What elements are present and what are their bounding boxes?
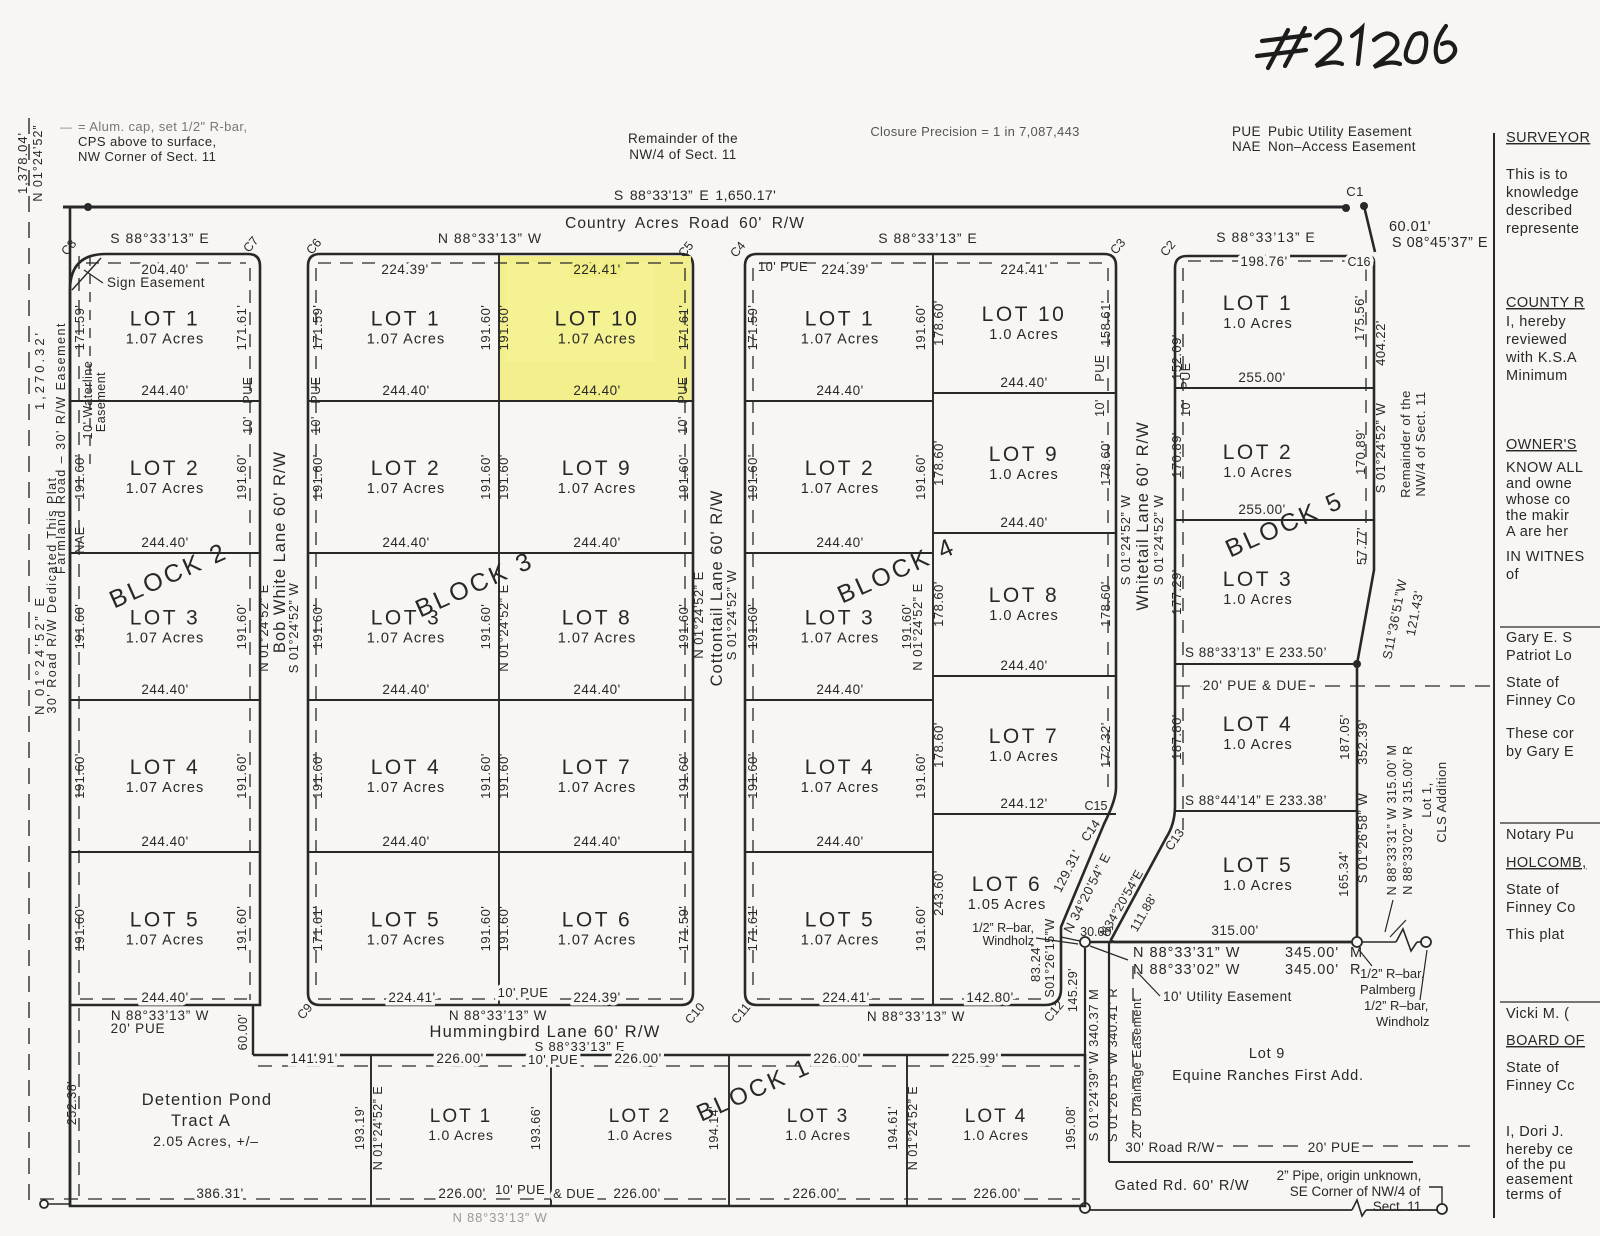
svg-text:1.07 Acres: 1.07 Acres xyxy=(367,481,446,497)
svg-text:10' PUE: 10' PUE xyxy=(495,1182,545,1197)
svg-text:Minimum: Minimum xyxy=(1506,368,1568,384)
svg-text:Finney Co: Finney Co xyxy=(1506,693,1576,709)
svg-text:whose co: whose co xyxy=(1505,492,1570,508)
svg-text:244.40': 244.40' xyxy=(573,834,620,849)
svg-text:Equine Ranches First Add.: Equine Ranches First Add. xyxy=(1172,1068,1364,1084)
svg-text:LOT 4: LOT 4 xyxy=(965,1106,1027,1127)
svg-text:S 88°33’13” E: S 88°33’13” E xyxy=(878,230,978,246)
svg-text:BOARD OF: BOARD OF xyxy=(1506,1033,1585,1049)
svg-text:NW/4 of Sect. 11: NW/4 of Sect. 11 xyxy=(629,147,736,162)
svg-text:S 01°24’39” W 340.37 M: S 01°24’39” W 340.37 M xyxy=(1086,989,1101,1142)
svg-text:S 01°24’52” W: S 01°24’52” W xyxy=(286,583,301,674)
svg-text:244.40': 244.40' xyxy=(1000,658,1047,673)
svg-text:171.59': 171.59' xyxy=(310,305,325,351)
svg-text:226.00': 226.00' xyxy=(792,1186,839,1201)
svg-text:171.61': 171.61' xyxy=(234,305,249,351)
svg-text:244.40': 244.40' xyxy=(141,383,188,398)
svg-text:191.60': 191.60' xyxy=(478,305,493,351)
svg-text:SURVEYOR: SURVEYOR xyxy=(1506,130,1590,146)
svg-text:S 01°26’15” W 340.41’ R: S 01°26’15” W 340.41’ R xyxy=(1105,988,1120,1142)
svg-text:N 88°33’02” W: N 88°33’02” W xyxy=(1133,962,1240,978)
svg-text:244.40': 244.40' xyxy=(573,383,620,398)
svg-text:LOT 4: LOT 4 xyxy=(1223,713,1293,736)
svg-text:I, Dori J.: I, Dori J. xyxy=(1506,1124,1564,1140)
svg-text:224.39': 224.39' xyxy=(381,262,428,277)
svg-text:178.60': 178.60' xyxy=(931,300,946,346)
svg-text:LOT 5: LOT 5 xyxy=(130,909,200,932)
svg-text:PUE: PUE xyxy=(241,376,255,403)
svg-text:404.22': 404.22' xyxy=(1373,320,1388,366)
svg-text:N 88°33’13” W: N 88°33’13” W xyxy=(867,1009,965,1024)
svg-text:Finney Co: Finney Co xyxy=(1506,900,1576,916)
svg-text:1/2” R–bar,: 1/2” R–bar, xyxy=(1360,966,1424,981)
svg-text:easement: easement xyxy=(1506,1172,1573,1188)
svg-text:191.60': 191.60' xyxy=(310,753,325,799)
svg-text:LOT 3: LOT 3 xyxy=(1223,568,1293,591)
svg-text:N 88°33’13” W: N 88°33’13” W xyxy=(452,1210,547,1225)
svg-text:191.60': 191.60' xyxy=(234,753,249,799)
svg-text:LOT 2: LOT 2 xyxy=(609,1106,671,1127)
svg-text:10' PUE: 10' PUE xyxy=(528,1052,578,1067)
svg-text:171.61': 171.61' xyxy=(745,906,760,952)
svg-text:244.40': 244.40' xyxy=(1000,515,1047,530)
svg-text:1.07 Acres: 1.07 Acres xyxy=(558,332,637,348)
svg-text:191.60': 191.60' xyxy=(310,454,325,500)
svg-text:LOT 3: LOT 3 xyxy=(805,607,875,630)
svg-text:& DUE: & DUE xyxy=(553,1186,595,1201)
svg-text:State of: State of xyxy=(1506,882,1560,898)
svg-text:191.60': 191.60' xyxy=(745,753,760,799)
svg-text:LOT 4: LOT 4 xyxy=(130,756,200,779)
svg-text:N 01°24’52” E: N 01°24’52” E xyxy=(256,584,271,672)
svg-text:1.0 Acres: 1.0 Acres xyxy=(1223,465,1292,481)
svg-text:Lot 1,: Lot 1, xyxy=(1419,782,1434,818)
svg-text:1.07 Acres: 1.07 Acres xyxy=(126,481,205,497)
svg-text:1.0 Acres: 1.0 Acres xyxy=(1223,316,1292,332)
svg-text:PUE: PUE xyxy=(309,376,323,403)
svg-text:1.07 Acres: 1.07 Acres xyxy=(801,780,880,796)
svg-text:LOT 2: LOT 2 xyxy=(805,457,875,480)
svg-text:These cor: These cor xyxy=(1506,726,1574,742)
svg-text:191.60': 191.60' xyxy=(913,906,928,952)
svg-text:LOT 4: LOT 4 xyxy=(805,756,875,779)
svg-text:1.0 Acres: 1.0 Acres xyxy=(1223,878,1292,894)
svg-text:LOT 6: LOT 6 xyxy=(972,873,1042,896)
svg-text:226.00': 226.00' xyxy=(813,1051,860,1066)
svg-text:244.40': 244.40' xyxy=(573,535,620,550)
svg-text:244.40': 244.40' xyxy=(1000,375,1047,390)
svg-text:195.08': 195.08' xyxy=(1064,1106,1078,1150)
svg-text:represente: represente xyxy=(1506,221,1579,237)
svg-text:224.41': 224.41' xyxy=(388,990,435,1005)
svg-text:191.60': 191.60' xyxy=(478,454,493,500)
svg-text:226.00': 226.00' xyxy=(436,1051,483,1066)
svg-text:Sign Easement: Sign Easement xyxy=(107,275,205,290)
svg-text:S 88°33’13” E: S 88°33’13” E xyxy=(1216,229,1316,245)
svg-text:LOT 7: LOT 7 xyxy=(989,725,1059,748)
svg-text:158.61': 158.61' xyxy=(1098,300,1113,346)
svg-text:20' PUE: 20' PUE xyxy=(111,1021,166,1036)
svg-text:1.07 Acres: 1.07 Acres xyxy=(558,631,637,647)
svg-text:352.39': 352.39' xyxy=(1355,719,1370,765)
svg-text:LOT 4: LOT 4 xyxy=(371,756,441,779)
svg-text:Detention Pond: Detention Pond xyxy=(142,1091,273,1109)
svg-text:171.61': 171.61' xyxy=(676,305,691,351)
svg-text:Notary Pu: Notary Pu xyxy=(1506,827,1574,843)
svg-text:1.07 Acres: 1.07 Acres xyxy=(367,933,446,949)
svg-text:LOT 2: LOT 2 xyxy=(1223,441,1293,464)
svg-text:N 01°24’52” E: N 01°24’52” E xyxy=(906,1086,920,1170)
svg-text:10' Waterline: 10' Waterline xyxy=(81,361,95,440)
svg-text:NAE: NAE xyxy=(73,526,87,553)
svg-text:N 01°24’52” E: N 01°24’52” E xyxy=(691,571,706,659)
svg-text:PUE: PUE xyxy=(1232,124,1261,139)
svg-text:LOT 5: LOT 5 xyxy=(371,909,441,932)
svg-text:of the pu: of the pu xyxy=(1506,1157,1566,1173)
svg-text:178.60': 178.60' xyxy=(931,722,946,768)
svg-text:This is to: This is to xyxy=(1506,167,1568,183)
svg-text:193.19': 193.19' xyxy=(353,1106,367,1150)
svg-text:LOT 3: LOT 3 xyxy=(787,1106,849,1127)
svg-text:1.07 Acres: 1.07 Acres xyxy=(558,481,637,497)
svg-text:S 01°24’52” W: S 01°24’52” W xyxy=(1151,495,1166,586)
svg-text:191.60': 191.60' xyxy=(913,454,928,500)
svg-text:LOT 7: LOT 7 xyxy=(562,756,632,779)
svg-text:1.0 Acres: 1.0 Acres xyxy=(607,1127,673,1143)
svg-text:S 88°44’14” E 233.38’: S 88°44’14” E 233.38’ xyxy=(1185,793,1327,808)
svg-text:LOT 5: LOT 5 xyxy=(805,909,875,932)
svg-text:1.0 Acres: 1.0 Acres xyxy=(1223,592,1292,608)
svg-text:N 88°33’02” W 315.00’ R: N 88°33’02” W 315.00’ R xyxy=(1401,745,1415,894)
svg-text:LOT 8: LOT 8 xyxy=(989,584,1059,607)
svg-text:Patriot Lo: Patriot Lo xyxy=(1506,648,1572,664)
svg-text:terms of: terms of xyxy=(1506,1187,1562,1203)
svg-text:Tract A: Tract A xyxy=(171,1112,231,1130)
svg-text:171.61': 171.61' xyxy=(310,906,325,952)
svg-text:224.39': 224.39' xyxy=(821,262,868,277)
svg-text:Remainder of the: Remainder of the xyxy=(1398,390,1413,498)
svg-text:OWNER'S: OWNER'S xyxy=(1506,437,1577,453)
svg-text:LOT 1: LOT 1 xyxy=(805,308,875,331)
svg-text:178.60': 178.60' xyxy=(931,440,946,486)
svg-text:187.05': 187.05' xyxy=(1337,714,1352,760)
svg-text:C1: C1 xyxy=(1346,184,1364,199)
svg-text:1.07 Acres: 1.07 Acres xyxy=(558,780,637,796)
svg-text:244.40': 244.40' xyxy=(141,535,188,550)
svg-text:1.07 Acres: 1.07 Acres xyxy=(126,332,205,348)
svg-text:SE Corner of NW/4 of: SE Corner of NW/4 of xyxy=(1290,1184,1421,1199)
svg-text:171.59': 171.59' xyxy=(745,305,760,351)
svg-text:S 08°45’37” E: S 08°45’37” E xyxy=(1392,235,1488,251)
svg-text:LOT 2: LOT 2 xyxy=(371,457,441,480)
svg-text:Easement: Easement xyxy=(94,372,108,432)
svg-text:1.0 Acres: 1.0 Acres xyxy=(785,1127,851,1143)
svg-text:A are her: A are her xyxy=(1506,524,1568,540)
svg-text:LOT 9: LOT 9 xyxy=(562,457,632,480)
svg-text:C16: C16 xyxy=(1348,255,1371,269)
svg-text:191.60': 191.60' xyxy=(913,305,928,351)
svg-text:Windholz: Windholz xyxy=(983,934,1034,948)
svg-text:191.60': 191.60' xyxy=(496,753,511,799)
svg-text:175.56': 175.56' xyxy=(1352,295,1367,341)
svg-text:244.40': 244.40' xyxy=(382,682,429,697)
svg-text:193.66': 193.66' xyxy=(529,1106,543,1150)
svg-text:1.07 Acres: 1.07 Acres xyxy=(801,332,880,348)
svg-text:LOT 10: LOT 10 xyxy=(555,308,640,331)
svg-text:1.07 Acres: 1.07 Acres xyxy=(367,780,446,796)
svg-text:1.0 Acres: 1.0 Acres xyxy=(989,467,1058,483)
svg-text:10': 10' xyxy=(1093,399,1107,417)
svg-text:243.60': 243.60' xyxy=(931,870,946,916)
svg-text:S 01°24’52” W: S 01°24’52” W xyxy=(724,570,739,661)
svg-text:LOT 1: LOT 1 xyxy=(430,1106,492,1127)
svg-text:244.40': 244.40' xyxy=(816,834,863,849)
svg-text:191.60': 191.60' xyxy=(496,454,511,500)
svg-text:191.60': 191.60' xyxy=(234,604,249,650)
svg-text:Gated Rd. 60' R/W: Gated Rd. 60' R/W xyxy=(1115,1178,1250,1194)
svg-text:2.05 Acres, +/–: 2.05 Acres, +/– xyxy=(153,1133,259,1149)
svg-text:191.60': 191.60' xyxy=(478,906,493,952)
svg-text:of: of xyxy=(1506,567,1519,583)
svg-text:224.39': 224.39' xyxy=(573,990,620,1005)
svg-text:described: described xyxy=(1506,203,1572,219)
svg-text:225.99': 225.99' xyxy=(951,1051,998,1066)
svg-text:Vicki M. (: Vicki M. ( xyxy=(1506,1006,1569,1022)
svg-text:Pubic Utility Easement: Pubic Utility Easement xyxy=(1268,124,1412,139)
svg-text:191.60': 191.60' xyxy=(478,604,493,650)
svg-text:191.60': 191.60' xyxy=(72,753,87,799)
svg-text:1.0 Acres: 1.0 Acres xyxy=(989,749,1058,765)
svg-text:Lot 9: Lot 9 xyxy=(1249,1046,1285,1062)
svg-text:315.00': 315.00' xyxy=(1211,923,1258,938)
svg-text:20' PUE & DUE: 20' PUE & DUE xyxy=(1203,678,1308,693)
svg-text:Sect. 11: Sect. 11 xyxy=(1373,1199,1422,1214)
svg-text:by Gary E: by Gary E xyxy=(1506,744,1574,760)
svg-text:142.80': 142.80' xyxy=(966,990,1013,1005)
svg-text:S 01°24’52” W: S 01°24’52” W xyxy=(1118,495,1133,586)
svg-text:345.00': 345.00' xyxy=(1285,962,1339,978)
svg-text:191.60': 191.60' xyxy=(676,753,691,799)
svg-text:2” Pipe, origin unknown,: 2” Pipe, origin unknown, xyxy=(1277,1168,1422,1183)
svg-text:hereby ce: hereby ce xyxy=(1506,1142,1573,1158)
svg-text:170.89': 170.89' xyxy=(1353,429,1368,475)
svg-text:N 88°33’13” W: N 88°33’13” W xyxy=(438,230,542,246)
svg-text:Country Acres Road 60' R/W: Country Acres Road 60' R/W xyxy=(565,215,805,232)
svg-text:1.07 Acres: 1.07 Acres xyxy=(367,631,446,647)
svg-text:1.05 Acres: 1.05 Acres xyxy=(968,897,1047,913)
svg-text:N 01°24’52” E: N 01°24’52” E xyxy=(371,1086,385,1170)
svg-text:1.07 Acres: 1.07 Acres xyxy=(367,332,446,348)
svg-text:PUE: PUE xyxy=(1179,362,1193,389)
svg-text:knowledge: knowledge xyxy=(1506,185,1579,201)
svg-text:1.0 Acres: 1.0 Acres xyxy=(989,608,1058,624)
svg-text:198.76': 198.76' xyxy=(1240,254,1287,269)
svg-text:141.91': 141.91' xyxy=(290,1051,337,1066)
svg-text:191.60': 191.60' xyxy=(496,305,511,351)
svg-text:IN WITNES: IN WITNES xyxy=(1506,549,1585,565)
svg-text:Whitetail Lane 60' R/W: Whitetail Lane 60' R/W xyxy=(1134,421,1152,610)
svg-text:83.24': 83.24' xyxy=(1028,944,1043,982)
svg-text:LOT 5: LOT 5 xyxy=(1223,854,1293,877)
svg-text:191.60': 191.60' xyxy=(676,454,691,500)
svg-text:1.0 Acres: 1.0 Acres xyxy=(1223,737,1292,753)
svg-text:171.59': 171.59' xyxy=(72,305,87,351)
svg-text:178.60': 178.60' xyxy=(1098,440,1113,486)
svg-text:170.89': 170.89' xyxy=(1169,432,1184,478)
svg-text:20' Drainage Easement: 20' Drainage Easement xyxy=(1130,998,1144,1139)
svg-text:M: M xyxy=(1350,945,1362,961)
svg-text:LOT 1: LOT 1 xyxy=(130,308,200,331)
svg-text:Finney Cc: Finney Cc xyxy=(1506,1078,1575,1094)
svg-text:PUE: PUE xyxy=(676,376,690,403)
svg-text:244.40': 244.40' xyxy=(141,990,188,1005)
svg-text:252.38': 252.38' xyxy=(65,1081,79,1125)
svg-text:10' Utility Easement: 10' Utility Easement xyxy=(1163,989,1292,1004)
svg-text:191.60': 191.60' xyxy=(676,604,691,650)
svg-text:10': 10' xyxy=(676,416,690,434)
svg-text:N 01°24’52” E: N 01°24’52” E xyxy=(496,584,511,672)
svg-text:1.0 Acres: 1.0 Acres xyxy=(963,1127,1029,1143)
svg-text:226.00': 226.00' xyxy=(613,1186,660,1201)
svg-text:226.00': 226.00' xyxy=(614,1051,661,1066)
svg-text:Closure Precision = 1 in 7,087: Closure Precision = 1 in 7,087,443 xyxy=(870,124,1079,139)
svg-text:1,270.32': 1,270.32' xyxy=(32,330,47,410)
svg-text:187.80': 187.80' xyxy=(1169,714,1184,760)
svg-text:1.07 Acres: 1.07 Acres xyxy=(126,933,205,949)
svg-text:N 01°24’52”: N 01°24’52” xyxy=(31,124,45,201)
svg-text:345.00': 345.00' xyxy=(1285,945,1339,961)
svg-text:State of: State of xyxy=(1506,1060,1560,1076)
svg-text:N 88°33’31” W: N 88°33’31” W xyxy=(1133,945,1240,961)
svg-text:244.12': 244.12' xyxy=(1000,796,1047,811)
svg-text:S 88°33’13” E: S 88°33’13” E xyxy=(110,230,210,246)
svg-text:191.60': 191.60' xyxy=(310,604,325,650)
svg-text:10': 10' xyxy=(1179,399,1193,417)
svg-text:LOT 9: LOT 9 xyxy=(989,443,1059,466)
svg-text:with K.S.A: with K.S.A xyxy=(1505,350,1577,366)
svg-text:C15: C15 xyxy=(1085,799,1108,813)
svg-text:255.00': 255.00' xyxy=(1238,370,1285,385)
svg-text:1.07 Acres: 1.07 Acres xyxy=(126,780,205,796)
svg-text:LOT 8: LOT 8 xyxy=(562,607,632,630)
svg-text:and owne: and owne xyxy=(1506,476,1572,492)
svg-text:R: R xyxy=(1350,962,1360,978)
svg-text:191.60': 191.60' xyxy=(913,753,928,799)
svg-text:1.07 Acres: 1.07 Acres xyxy=(801,481,880,497)
svg-text:191.60': 191.60' xyxy=(72,454,87,500)
svg-text:191.60': 191.60' xyxy=(234,454,249,500)
svg-text:NW/4 of Sect. 11: NW/4 of Sect. 11 xyxy=(1413,391,1428,496)
svg-text:191.60': 191.60' xyxy=(234,906,249,952)
svg-text:20' PUE: 20' PUE xyxy=(1308,1140,1361,1155)
svg-text:NAE: NAE xyxy=(1232,139,1261,154)
svg-text:178.60': 178.60' xyxy=(1098,581,1113,627)
svg-text:HOLCOMB,: HOLCOMB, xyxy=(1506,855,1587,871)
svg-text:1.0 Acres: 1.0 Acres xyxy=(989,327,1058,343)
svg-text:191.60': 191.60' xyxy=(745,454,760,500)
svg-text:1,378.04': 1,378.04' xyxy=(15,132,30,194)
svg-text:191.60': 191.60' xyxy=(72,604,87,650)
svg-text:57.77': 57.77' xyxy=(1354,527,1369,565)
svg-text:244.40': 244.40' xyxy=(382,834,429,849)
svg-text:Farmland Road – 30' R/W Easeme: Farmland Road – 30' R/W Easement xyxy=(54,322,68,574)
svg-text:60.00': 60.00' xyxy=(236,1014,250,1051)
svg-text:177.29': 177.29' xyxy=(1169,569,1184,615)
svg-text:191.60': 191.60' xyxy=(72,906,87,952)
svg-text:1.07 Acres: 1.07 Acres xyxy=(558,933,637,949)
svg-text:1/2” R–bar,: 1/2” R–bar, xyxy=(972,921,1034,935)
svg-text:244.40': 244.40' xyxy=(573,682,620,697)
svg-text:1.07 Acres: 1.07 Acres xyxy=(126,631,205,647)
svg-text:—: — xyxy=(60,120,72,134)
svg-text:10': 10' xyxy=(309,416,323,434)
svg-text:165.34': 165.34' xyxy=(1336,851,1351,897)
svg-text:LOT 1: LOT 1 xyxy=(371,308,441,331)
svg-text:145.29': 145.29' xyxy=(1066,968,1080,1012)
svg-text:LOT 3: LOT 3 xyxy=(130,607,200,630)
svg-text:Palmberg: Palmberg xyxy=(1360,982,1416,997)
svg-text:NW Corner of Sect. 11: NW Corner of Sect. 11 xyxy=(78,149,216,164)
svg-text:This plat: This plat xyxy=(1506,927,1564,943)
svg-text:Remainder of the: Remainder of the xyxy=(628,131,738,146)
svg-text:State of: State of xyxy=(1506,675,1560,691)
svg-text:10' PUE: 10' PUE xyxy=(498,985,549,1000)
svg-text:the makir: the makir xyxy=(1506,508,1569,524)
svg-text:1/2” R–bar,: 1/2” R–bar, xyxy=(1364,998,1428,1013)
svg-text:S 01°26’58” W: S 01°26’58” W xyxy=(1355,793,1370,884)
svg-text:386.31': 386.31' xyxy=(196,1186,243,1201)
svg-text:1.0 Acres: 1.0 Acres xyxy=(428,1127,494,1143)
svg-text:S01°26’15”W: S01°26’15”W xyxy=(1043,918,1057,997)
svg-text:Windholz: Windholz xyxy=(1376,1014,1429,1029)
svg-text:CLS Addition: CLS Addition xyxy=(1434,761,1449,842)
svg-text:N 88°33’13” W: N 88°33’13” W xyxy=(449,1008,547,1023)
svg-text:N 01°24’52” E: N 01°24’52” E xyxy=(910,583,925,671)
svg-text:CPS above to surface,: CPS above to surface, xyxy=(78,134,216,149)
svg-text:60.01': 60.01' xyxy=(1389,219,1431,235)
svg-text:191.60': 191.60' xyxy=(478,753,493,799)
svg-text:LOT 10: LOT 10 xyxy=(982,303,1067,326)
svg-text:224.41': 224.41' xyxy=(822,990,869,1005)
svg-text:244.40': 244.40' xyxy=(141,682,188,697)
svg-text:LOT 2: LOT 2 xyxy=(130,457,200,480)
svg-text:PUE: PUE xyxy=(1093,354,1107,381)
svg-text:Gary E. S: Gary E. S xyxy=(1506,630,1572,646)
svg-text:244.40': 244.40' xyxy=(816,535,863,550)
svg-text:N 88°33’31” W 315.00’ M: N 88°33’31” W 315.00’ M xyxy=(1385,745,1399,896)
svg-text:10': 10' xyxy=(241,416,255,434)
svg-text:224.41': 224.41' xyxy=(1000,262,1047,277)
svg-text:S 01°24’52” W: S 01°24’52” W xyxy=(1373,403,1388,494)
svg-text:194.61': 194.61' xyxy=(886,1106,900,1150)
svg-text:226.00': 226.00' xyxy=(973,1186,1020,1201)
svg-text:244.40': 244.40' xyxy=(816,383,863,398)
svg-text:226.00': 226.00' xyxy=(438,1186,485,1201)
svg-text:LOT 1: LOT 1 xyxy=(1223,292,1293,315)
svg-text:Non–Access Easement: Non–Access Easement xyxy=(1268,139,1416,154)
svg-text:= Alum. cap, set 1/2" R-bar,: = Alum. cap, set 1/2" R-bar, xyxy=(78,119,247,134)
svg-text:10' PUE: 10' PUE xyxy=(758,259,808,274)
svg-text:S 88°33'13” E 1,650.17': S 88°33'13” E 1,650.17' xyxy=(614,187,776,203)
svg-text:224.41': 224.41' xyxy=(573,262,620,277)
svg-text:S 88°33’13” E 233.50’: S 88°33’13” E 233.50’ xyxy=(1185,645,1327,660)
svg-text:KNOW ALL: KNOW ALL xyxy=(1506,460,1583,476)
svg-text:244.40': 244.40' xyxy=(816,682,863,697)
svg-text:171.59': 171.59' xyxy=(676,906,691,952)
svg-text:244.40': 244.40' xyxy=(382,535,429,550)
svg-text:30' Road R/W: 30' Road R/W xyxy=(1125,1140,1215,1155)
svg-text:191.60': 191.60' xyxy=(496,906,511,952)
